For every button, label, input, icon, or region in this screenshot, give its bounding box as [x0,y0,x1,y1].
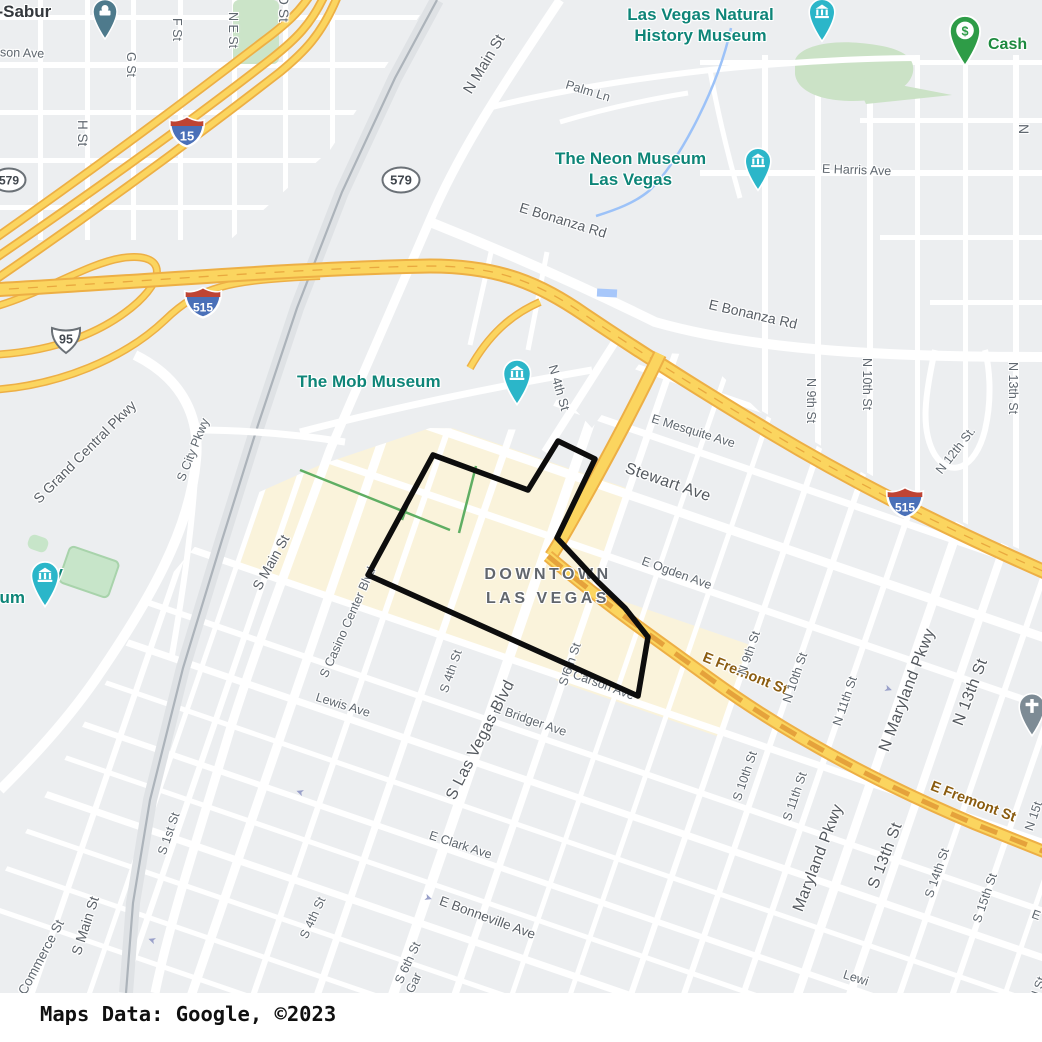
church-pin-icon[interactable] [1016,692,1042,737]
i515-freeway [0,266,1042,572]
map-attribution: Maps Data: Google, ©2023 [40,1002,336,1026]
area-label-downtown: DOWNTOWN [448,566,648,584]
svg-text:579: 579 [0,174,19,188]
bonanza-rd-road [430,222,1042,357]
area-label-las-vegas: LAS VEGAS [448,590,648,608]
svg-text:515: 515 [193,301,213,315]
street-label-n-e-st: N E St [226,12,240,48]
map-canvas[interactable]: ➤ ➤ ➤ ➤ 15 515 515 95 579 579 son Ave F … [0,0,1042,993]
palm-ln-road [560,93,688,122]
street-label-f-st: F St [170,18,184,41]
poi-label-mob-museum[interactable]: The Mob Museum [297,372,441,392]
street-label-n-9th-st: N 9th St [804,378,818,423]
poi-label-cashman[interactable]: Cash [988,36,1027,54]
street-label-n-partial: N [1016,124,1032,134]
street-label-n-13th-st: N 13th St [1006,362,1020,414]
water-feature [597,288,617,297]
street-label-e-harris-ave: E Harris Ave [822,162,892,178]
svg-text:579: 579 [390,173,412,188]
las-vegas-blvd-road [551,354,660,556]
svg-text:95: 95 [59,333,73,347]
i15-shield-icon: 15 [168,115,206,148]
poi-label-natural-history-museum[interactable]: Las Vegas Natural [598,5,803,25]
street-label-o-st: O St [276,0,292,22]
nv579-shield-icon: 579 [380,165,422,195]
i515-shield-icon: 515 [183,286,223,319]
us95-shield-icon: 95 [48,324,84,356]
museum-pin-icon[interactable] [742,146,774,192]
street-label-g-st: G St [124,52,138,77]
cashman-pin-icon[interactable]: $ [946,14,984,67]
i515-shield-icon: 515 [885,486,925,519]
poi-label-las-sabur[interactable]: s-Sabur [0,2,51,22]
poi-label-neon-museum[interactable]: Las Vegas [528,170,733,190]
nv579-shield-icon: 579 [0,166,28,194]
museum-pin-icon[interactable] [28,560,62,608]
pedestrian-mall-lines [300,466,476,533]
museum-pin-icon[interactable] [806,0,838,43]
museum-pin-icon[interactable] [500,358,534,406]
poi-label-neon-museum[interactable]: The Neon Museum [528,149,733,169]
poi-label-discovery-museum[interactable]: um [0,588,25,608]
svg-text:515: 515 [895,501,915,515]
mosque-pin-icon[interactable] [90,0,120,40]
street-label-n-10th-st: N 10th St [860,358,874,410]
svg-text:$: $ [961,24,968,38]
street-label-h-st: H St [75,120,90,146]
street-label-jackson-ave: son Ave [0,45,44,61]
poi-label-natural-history-museum[interactable]: History Museum [598,26,803,46]
screenshot: ➤ ➤ ➤ ➤ 15 515 515 95 579 579 son Ave F … [0,0,1042,1042]
svg-text:15: 15 [180,129,194,144]
